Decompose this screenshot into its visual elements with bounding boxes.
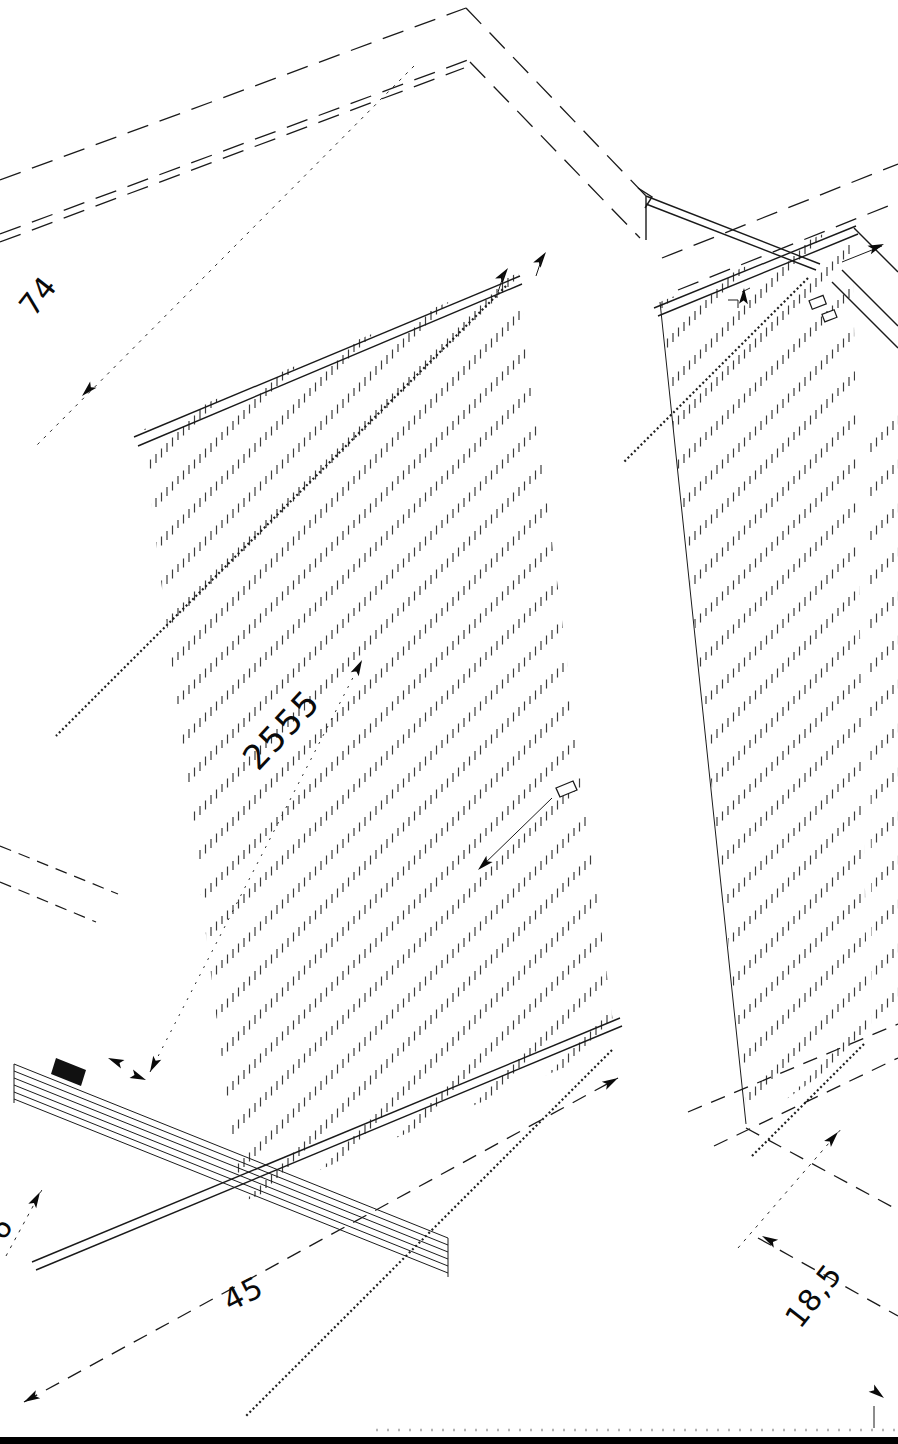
- left-door-panel: [56, 249, 616, 1416]
- left-door-face: [142, 273, 616, 1203]
- right-door-face: [660, 222, 868, 1126]
- arrowhead-icon: [22, 1390, 40, 1406]
- dashed-top-right-outer: [662, 164, 898, 258]
- top-rail-edge-2: [646, 204, 816, 270]
- dimension-label-top-left: 74: [12, 269, 64, 322]
- left-mid-dashes: [0, 846, 118, 922]
- dashed-top-edge-inner: [0, 60, 468, 234]
- right-door-panel: [624, 222, 868, 1156]
- arrowhead-icon: [869, 1385, 887, 1402]
- dashed-depth-line: [746, 1128, 898, 1210]
- baseline: [0, 1430, 898, 1444]
- dashed-segment: [0, 846, 118, 894]
- dimension-label-bottom: 45: [217, 1269, 269, 1318]
- arrowhead-icon: [146, 1056, 161, 1074]
- extension-line: [738, 1128, 842, 1248]
- arrowhead-icon: [867, 240, 885, 254]
- top-dashed-frame: [0, 8, 652, 242]
- dimension-left-edge: 6: [0, 1186, 44, 1256]
- arrowhead-icon: [106, 1054, 124, 1069]
- arrowhead-icon: [28, 1190, 44, 1208]
- arrowhead-icon: [79, 382, 97, 400]
- bottom-border-bar: [0, 1437, 898, 1444]
- dashed-depth-edge-inner: [470, 62, 640, 238]
- rail-end-fitting: [51, 1058, 86, 1086]
- dashed-depth-edge: [466, 8, 646, 196]
- arrowhead-icon: [602, 1074, 620, 1090]
- dimension-label-left-edge: 6: [0, 1209, 20, 1247]
- wardrobe-isometric-drawing: 74 2555: [0, 0, 898, 1444]
- dashed-segment-2: [0, 882, 96, 922]
- dimension-label-bottom-right: 18,5: [778, 1257, 849, 1334]
- technical-drawing-canvas: 74 2555: [0, 0, 898, 1444]
- arrowhead-icon: [130, 1070, 148, 1085]
- side-panel-face: [868, 394, 898, 1028]
